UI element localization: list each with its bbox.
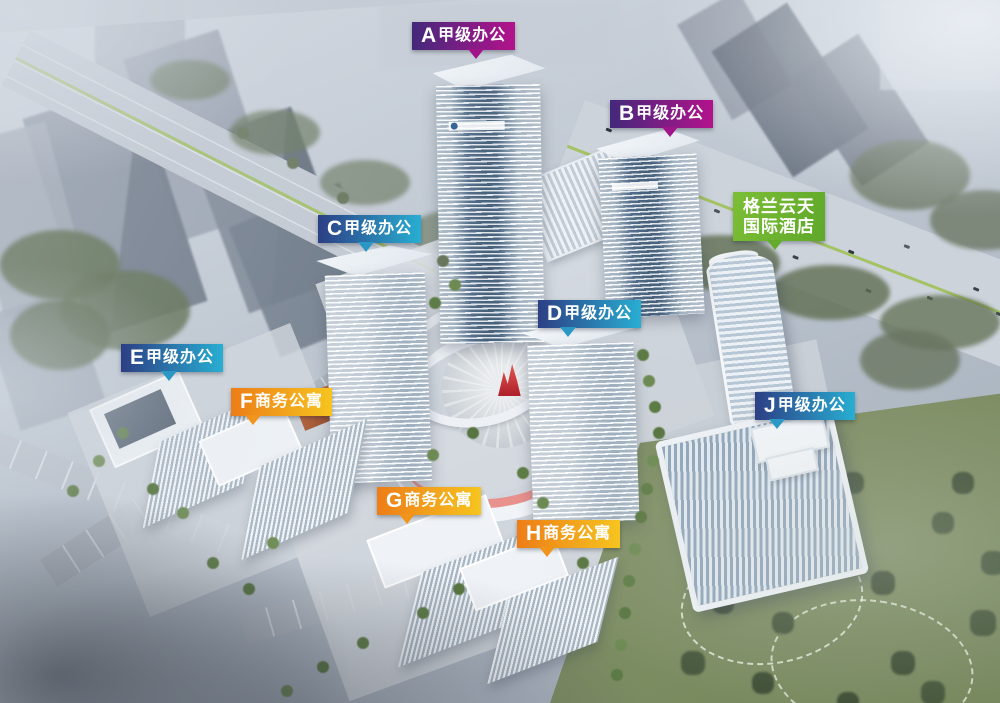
label-tower-g: G商务公寓 <box>377 487 481 515</box>
label-tower-j-text: 甲级办公 <box>778 398 846 414</box>
label-tower-b-letter: B <box>619 103 634 124</box>
label-tower-b-text: 甲级办公 <box>636 106 704 122</box>
tower-a <box>427 54 552 346</box>
label-tower-a-letter: A <box>421 25 436 46</box>
label-tower-d: D甲级办公 <box>538 300 641 328</box>
label-tower-j-letter: J <box>764 395 776 416</box>
label-tower-h-letter: H <box>526 523 541 544</box>
label-tower-f-letter: F <box>240 391 253 412</box>
tree-row <box>320 160 410 205</box>
tower-d <box>518 316 647 525</box>
label-tower-c-letter: C <box>327 218 342 239</box>
tree-row <box>230 110 320 155</box>
tree-row <box>150 60 230 100</box>
tower-b <box>591 127 711 322</box>
label-tower-e-letter: E <box>130 347 144 368</box>
aerial-masterplan-rendering: A甲级办公 B甲级办公 C甲级办公 D甲级办公 E甲级办公 F商务公寓 G商务公… <box>0 0 1000 703</box>
label-hotel: 格兰云天 国际酒店 <box>733 192 825 241</box>
label-tower-e: E甲级办公 <box>121 344 223 372</box>
highway-cars <box>584 100 591 105</box>
label-tower-d-text: 甲级办公 <box>564 306 632 322</box>
tree-mass <box>860 330 960 390</box>
street-trees <box>0 0 6 6</box>
background-building <box>880 0 1000 90</box>
label-tower-f: F商务公寓 <box>231 388 332 416</box>
label-tower-j: J甲级办公 <box>755 392 855 420</box>
label-tower-h-text: 商务公寓 <box>543 526 611 542</box>
label-tower-e-text: 甲级办公 <box>146 350 214 366</box>
label-tower-f-text: 商务公寓 <box>255 394 323 410</box>
label-tower-a-text: 甲级办公 <box>438 28 506 44</box>
label-tower-b: B甲级办公 <box>610 100 713 128</box>
label-tower-c-text: 甲级办公 <box>344 221 412 237</box>
label-tower-c: C甲级办公 <box>318 215 421 243</box>
label-tower-a: A甲级办公 <box>412 22 515 50</box>
label-hotel-line1: 格兰云天 <box>743 198 815 215</box>
tower-d-facade <box>527 342 639 524</box>
tree-mass <box>10 300 110 370</box>
tower-b-facade <box>598 154 704 319</box>
label-tower-d-letter: D <box>547 303 562 324</box>
label-tower-g-letter: G <box>386 490 402 511</box>
tower-a-logo-mark <box>451 123 458 130</box>
label-tower-h: H商务公寓 <box>517 520 620 548</box>
label-tower-g-text: 商务公寓 <box>404 493 472 509</box>
label-hotel-line2: 国际酒店 <box>743 218 815 235</box>
